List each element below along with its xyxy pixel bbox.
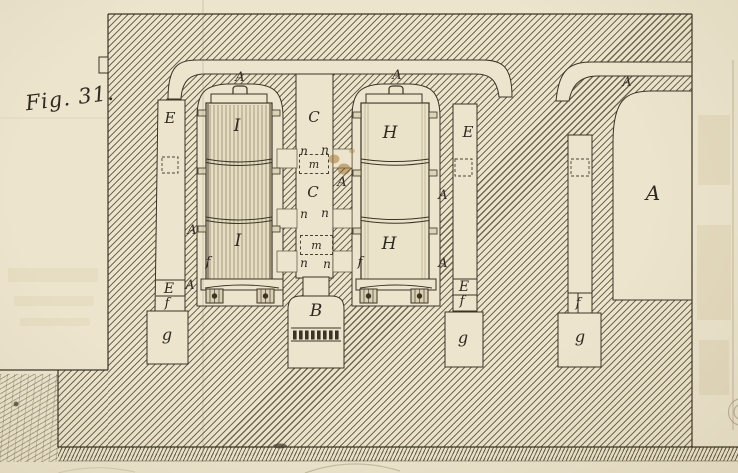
label-n3l: n [300,257,308,269]
furnace-neck [303,277,329,298]
label-a-h-wall-upper: A [438,189,447,202]
label-f2: f [460,295,465,308]
label-n3r: n [323,258,331,270]
channel-e1 [155,100,185,311]
label-e2-top: E [463,125,474,140]
label-f1: f [165,297,170,310]
label-h-lower: H [382,236,397,253]
label-a-i-wall-lower: A [185,279,194,292]
label-a-c-wall: A [337,176,346,189]
linework [0,0,738,473]
engraving-plate: m m Fig. 31. A A A E E I I H H C C A A A… [0,0,738,473]
label-a-i-wall-upper: A [187,224,196,237]
label-f-i: f [206,256,211,269]
carriage-h [356,279,436,290]
label-n2r: n [321,207,329,219]
label-a-far-chamber: A [646,183,660,203]
cylinder-h [353,86,437,303]
label-e1-bottom: E [164,282,174,296]
label-g3: g [575,329,585,345]
channel-3 [568,135,592,313]
label-c-mid: C [307,185,318,200]
label-g1: g [162,327,172,343]
cylinder-i-lid [211,94,267,103]
label-n1l: n [300,145,308,157]
label-m2: m [311,240,321,251]
damper-box-m2: m [300,235,333,255]
label-e2-bottom: E [459,280,469,294]
label-m1: m [309,159,319,170]
wall-tab [99,57,108,73]
label-a-h-wall-lower: A [438,257,447,270]
label-f3: f [576,297,581,310]
label-h-upper: H [383,125,398,142]
label-n1r: n [321,144,329,156]
label-i-upper: I [234,118,241,135]
label-b-chamber: B [310,303,323,320]
label-c-upper: C [308,110,319,125]
label-arch-a-left: A [235,71,244,84]
carriage-i [201,279,283,290]
label-arch-a-far: A [622,76,631,89]
label-e1-top: E [165,111,176,126]
label-i-lower: I [235,233,242,250]
label-g2: g [458,330,468,346]
label-f-h: f [358,256,363,269]
cylinder-h-lid [366,94,422,103]
label-n2l: n [300,208,308,220]
label-arch-a-right: A [392,69,401,82]
